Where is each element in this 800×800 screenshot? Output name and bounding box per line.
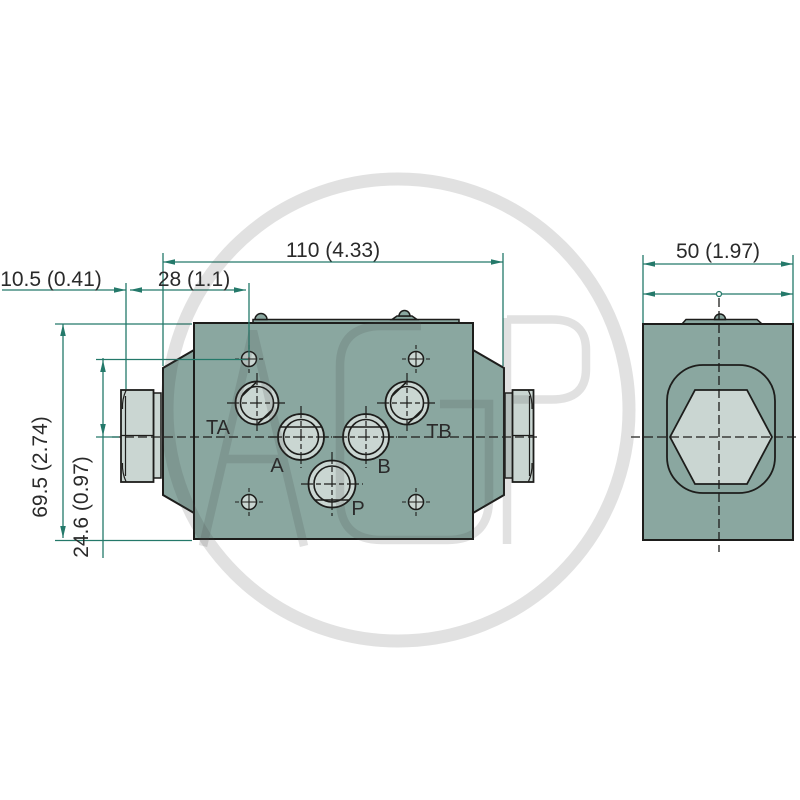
drawing-canvas: TA A B TB P 110 (4.33) 10.5 (0.41) xyxy=(0,0,800,800)
top-dome-right xyxy=(399,311,410,317)
dim-side-width: 50 (1.97) xyxy=(643,240,793,323)
dim-label-block-height: 69.5 (2.74) xyxy=(29,416,52,518)
dim-label-center-height: 24.6 (0.97) xyxy=(70,456,93,558)
dim-center-mark xyxy=(717,292,722,297)
technical-drawing: TA A B TB P 110 (4.33) 10.5 (0.41) xyxy=(0,0,800,800)
dim-label-side-width: 50 (1.97) xyxy=(676,240,760,263)
side-cap-dome xyxy=(715,314,726,320)
dim-label-plug-protrusion: 10.5 (0.41) xyxy=(0,268,102,291)
port-label-b: B xyxy=(377,456,390,478)
side-view xyxy=(631,298,800,552)
port-label-tb: TB xyxy=(426,421,452,443)
port-label-p: P xyxy=(351,498,364,520)
top-dome-left xyxy=(255,314,267,320)
left-plug-washer xyxy=(154,393,162,478)
left-hex-plug xyxy=(121,390,161,482)
dim-label-top-width: 110 (4.33) xyxy=(286,239,380,262)
